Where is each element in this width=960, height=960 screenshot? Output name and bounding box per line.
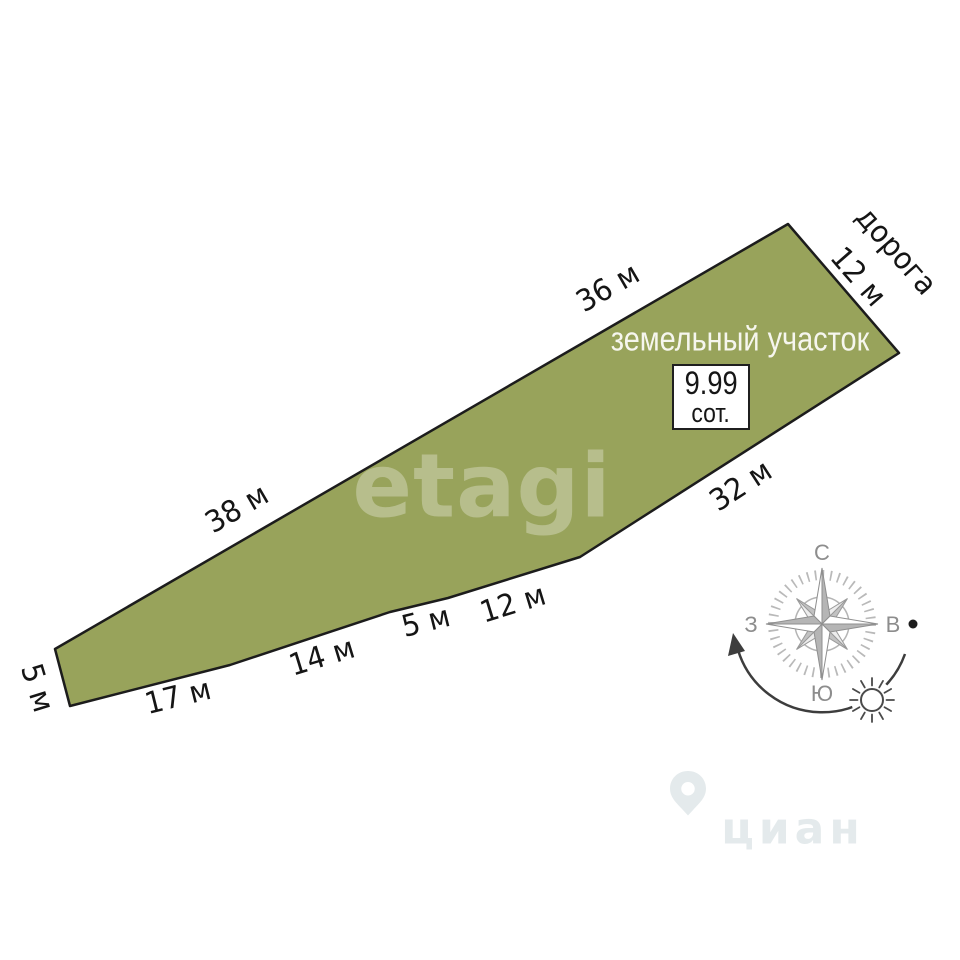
sunrise-dot bbox=[909, 620, 918, 629]
area-unit: сот. bbox=[692, 399, 730, 427]
plot-title: земельный участок bbox=[611, 321, 869, 360]
diagram-canvas bbox=[0, 0, 960, 960]
area-box: 9.99 сот. bbox=[672, 364, 750, 430]
cian-pin-icon bbox=[670, 771, 706, 816]
plot-polygon bbox=[55, 224, 899, 706]
compass-star bbox=[766, 568, 878, 680]
sun-path-arrowhead bbox=[728, 633, 745, 656]
compass-rose bbox=[766, 568, 878, 680]
area-value: 9.99 bbox=[685, 367, 738, 399]
land-plot-diagram: { "plot": { "name_label": "земельный уча… bbox=[0, 0, 960, 960]
